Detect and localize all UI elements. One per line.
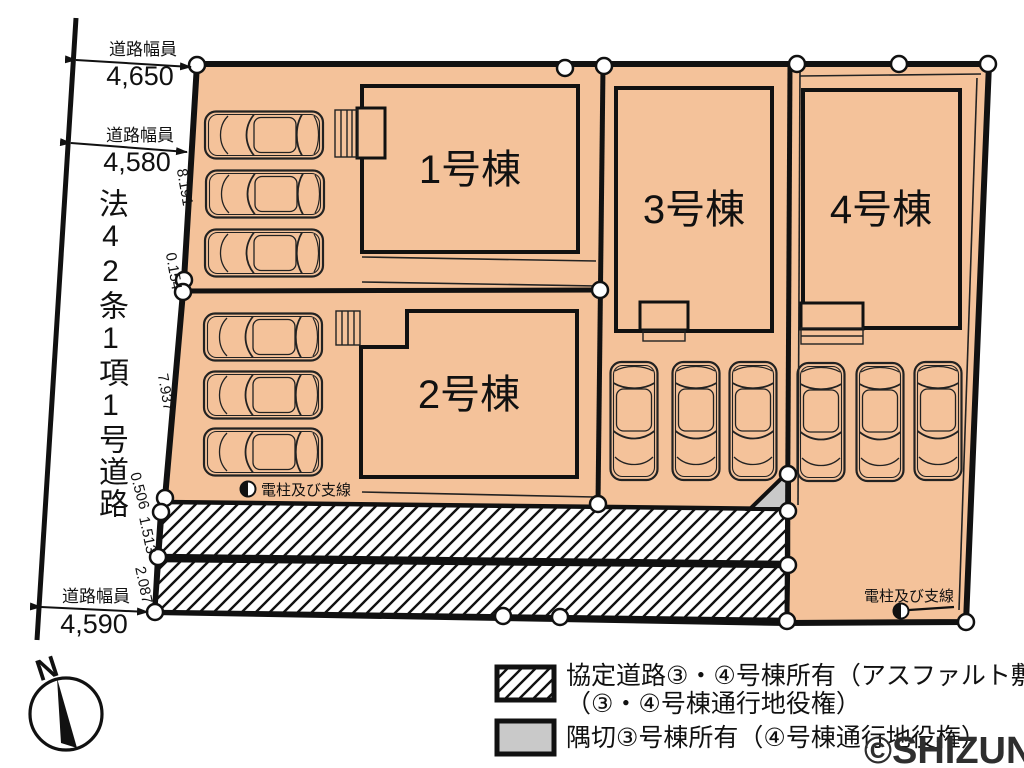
agreement-road-band-upper [159, 502, 788, 563]
utility-pole-1-label: 電柱及び支線 [261, 482, 351, 499]
road-width-top: 道路幅員 4,650 [76, 40, 191, 91]
north-arrow-icon: N [30, 650, 102, 750]
legend-gray-swatch [497, 721, 554, 754]
building-2-label: 2号棟 [418, 373, 520, 417]
watermark: ©SHIZUNAVI [864, 730, 1024, 768]
road-width-top-label: 道路幅員 [109, 40, 177, 59]
building-3-label: 3号棟 [643, 188, 745, 232]
dimension-label: 2.087 [131, 565, 155, 605]
road-width-bottom: 道路幅員 4,590 [41, 587, 148, 639]
legend-agreement-road-line1: 協定道路③・④号棟所有（アスファルト敷き） [566, 662, 1024, 690]
road-width-mid-label: 道路幅員 [106, 126, 174, 145]
utility-pole-2-label: 電柱及び支線 [864, 588, 954, 605]
road-width-mid-value: 4,580 [103, 147, 171, 177]
divider-lot3-lot4 [787, 64, 790, 621]
agreement-road-band-lower [155, 560, 788, 620]
road-west-edge-line [37, 18, 76, 640]
building-3: 3号棟 [616, 88, 772, 341]
building-1-label: 1号棟 [419, 148, 521, 192]
legend-hatch-swatch [497, 667, 554, 700]
road-width-bottom-value: 4,590 [60, 609, 128, 639]
building-4: 4号棟 [801, 90, 960, 344]
road-width-top-value: 4,650 [106, 61, 174, 91]
site-plan-drawing: 1号棟 2号棟 3号棟 4号棟 [0, 0, 1024, 768]
road-width-bottom-label: 道路幅員 [62, 587, 130, 606]
building-1: 1号棟 [335, 86, 578, 252]
dimension-label: 0.154 [162, 251, 185, 291]
road-designation-label: 法42条1項1号道路 [95, 188, 125, 520]
dimension-label: 1.513 [135, 515, 159, 555]
building-4-label: 4号棟 [830, 188, 932, 232]
site-plan: 1号棟 2号棟 3号棟 4号棟 [0, 0, 1024, 768]
dimension-label: 0.506 [126, 471, 152, 512]
divider-lot1-lot2 [181, 290, 600, 291]
legend-agreement-road-line2: （③・④号棟通行地役権） [566, 690, 861, 718]
road-width-mid: 道路幅員 4,580 [71, 126, 187, 177]
